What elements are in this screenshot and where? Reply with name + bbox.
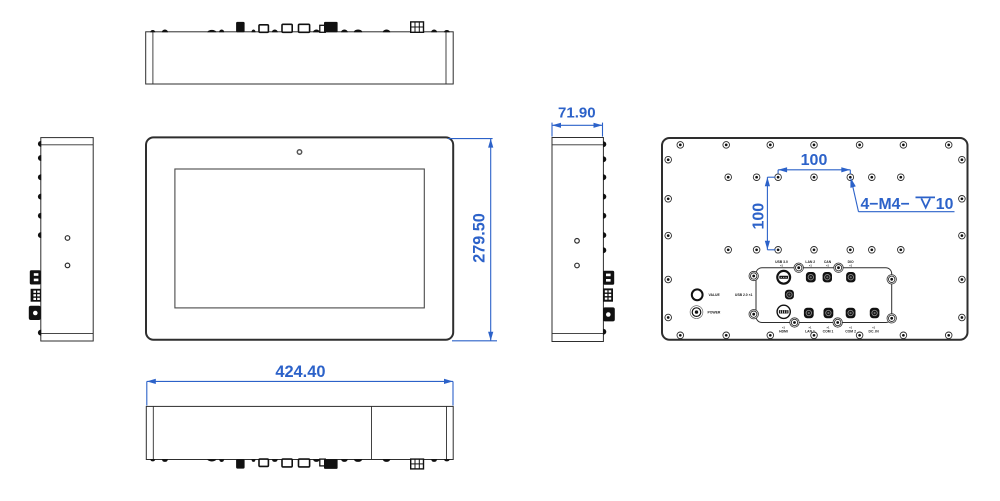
svg-text:71.90: 71.90 (558, 104, 596, 121)
svg-text:USB 3.0: USB 3.0 (775, 260, 788, 264)
svg-text:DIO: DIO (848, 260, 854, 264)
svg-text:CAN: CAN (824, 260, 832, 264)
svg-text:10: 10 (936, 196, 954, 213)
svg-text:LAN 2: LAN 2 (805, 260, 815, 264)
svg-text:100: 100 (750, 203, 767, 230)
svg-text:100: 100 (801, 152, 828, 169)
svg-text:USB 2.0 ×1: USB 2.0 ×1 (735, 293, 753, 297)
svg-text:LAN 1: LAN 1 (805, 329, 815, 333)
svg-text:HDMI: HDMI (779, 329, 788, 333)
svg-text:VALUE: VALUE (709, 293, 721, 297)
svg-text:COM 2: COM 2 (845, 329, 856, 333)
svg-text:POWER: POWER (708, 311, 721, 315)
svg-text:279.50: 279.50 (471, 213, 489, 263)
svg-text:DC_IN: DC_IN (869, 329, 880, 333)
svg-text:4−M4−: 4−M4− (861, 196, 910, 213)
svg-text:424.40: 424.40 (275, 363, 325, 381)
svg-text:COM 1: COM 1 (823, 329, 834, 333)
